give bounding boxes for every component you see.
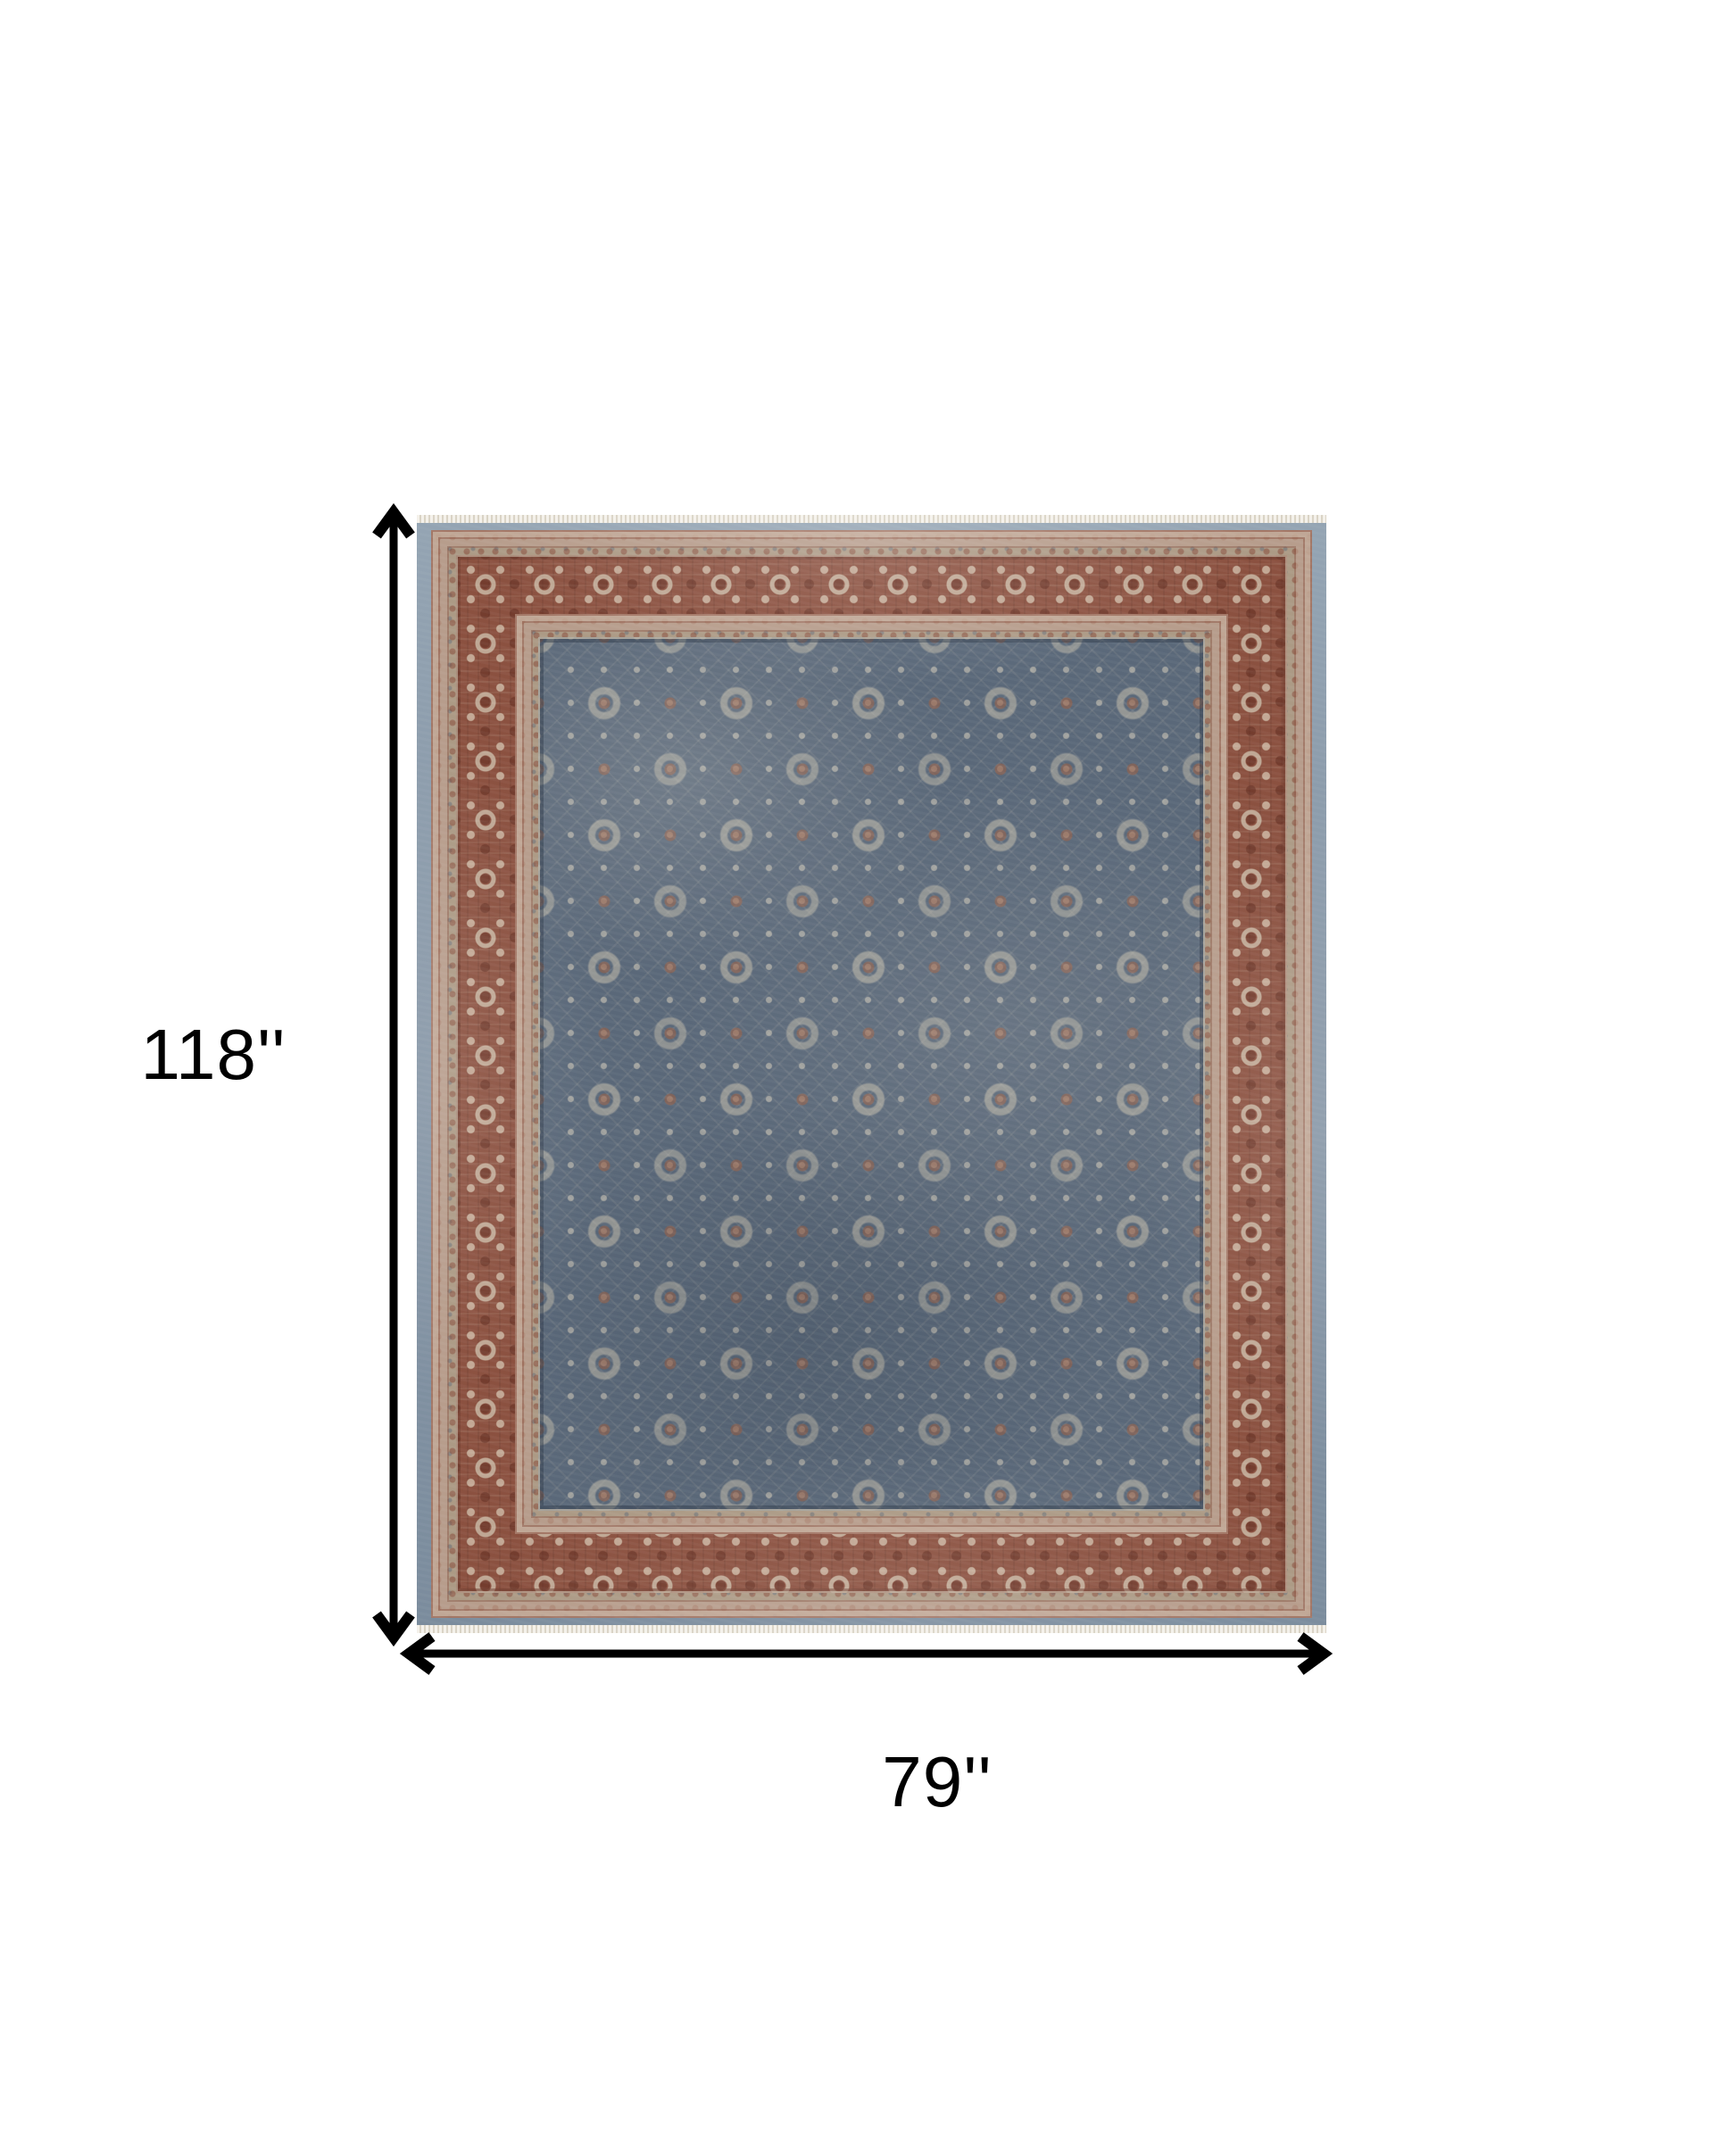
product-dimension-image: 118'' 79'' [0,0,1736,2148]
width-dimension-label: 79'' [848,1746,1026,1818]
height-dimension-label: 118'' [124,1019,303,1091]
height-arrow-icon [377,512,411,1638]
width-arrow-icon [409,1637,1324,1671]
